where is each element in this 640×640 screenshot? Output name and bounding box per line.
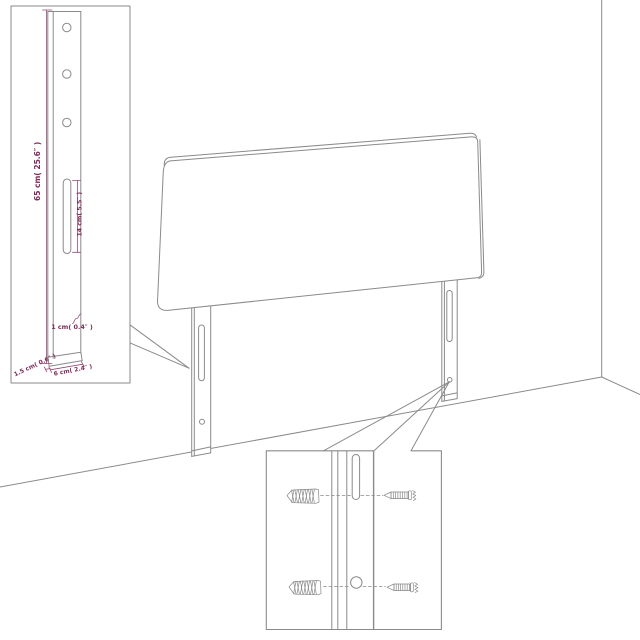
- height-dimension-label: 65 cm( 25.6″ ): [33, 145, 43, 201]
- lip-dimension-label: 1 cm( 0.4″ ): [47, 323, 97, 332]
- diagram-linework: [0, 0, 640, 640]
- hardware-callout-lines: [324, 382, 450, 451]
- assembly-diagram: 65 cm( 25.6″ ) 14 cm( 5.5″ ) 1 cm( 0.4″ …: [0, 0, 640, 640]
- right-leg: [442, 277, 457, 402]
- inset-callout-lines: [131, 325, 189, 368]
- slot-dimension-label: 14 cm( 5.5″ ): [76, 195, 85, 237]
- inset-frame: [266, 451, 441, 630]
- left-leg: [192, 301, 211, 457]
- hardware-inset: [266, 451, 441, 630]
- headboard-panel: [158, 133, 484, 310]
